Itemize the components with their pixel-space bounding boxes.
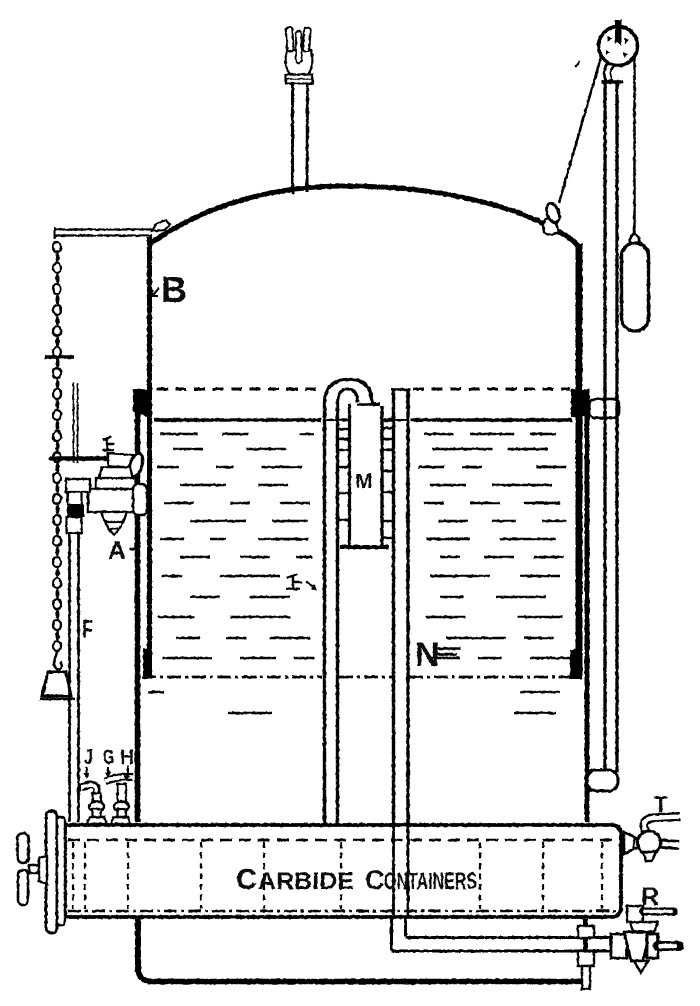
svg-text:N: N <box>415 636 440 674</box>
svg-text:T: T <box>654 792 668 817</box>
svg-text:G: G <box>103 746 114 769</box>
svg-text:B: B <box>161 269 187 310</box>
svg-text:C: C <box>236 864 257 896</box>
svg-text:M: M <box>355 470 373 493</box>
svg-text:C: C <box>365 865 385 895</box>
svg-text:J: J <box>84 746 93 769</box>
svg-text:A: A <box>108 537 126 565</box>
svg-text:ARBIDE: ARBIDE <box>258 868 354 895</box>
svg-text:R: R <box>641 883 659 911</box>
svg-text:F: F <box>82 614 93 644</box>
svg-text:ONTAINERS: ONTAINERS <box>384 868 477 895</box>
